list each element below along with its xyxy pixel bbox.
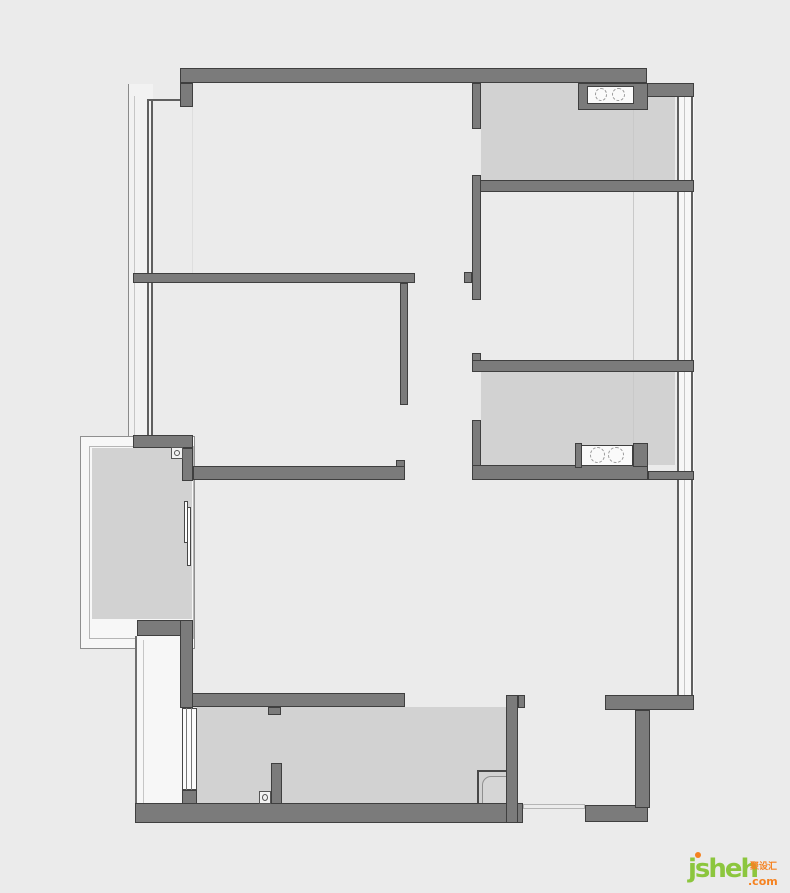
wall-balcony-bottom [137, 620, 183, 636]
kitchen-window-glass [182, 708, 197, 790]
wall-bottom-main [135, 803, 523, 823]
wall-bath-mid-bottom [472, 465, 648, 480]
wall-top-left-stub [180, 83, 193, 107]
shadow-line-right [633, 84, 634, 465]
wall-bedroom-left-bottom-stub [396, 460, 405, 467]
wall-top-right-step [647, 83, 694, 97]
wall-mid-horizontal [133, 273, 415, 283]
kitchen-window-line-b [191, 708, 192, 790]
wall-bath-mid-bottom-ext [648, 471, 694, 480]
room-kitchen [197, 707, 506, 804]
watermark-brand: jsheh [688, 856, 757, 882]
balcony-door-panel-b [187, 507, 191, 566]
vanity-top-basin-left [595, 88, 607, 101]
wall-bath-mid-niche-right [633, 443, 648, 467]
wall-kitchen-right [506, 695, 518, 823]
room-balcony [92, 448, 192, 619]
wall-kitchen-partition [271, 763, 282, 805]
wall-bath-top-left [472, 83, 481, 129]
wall-bedroom-left-bottom [193, 466, 405, 480]
meter-icon-balcony [171, 447, 183, 459]
wall-bedroom-right-left [472, 175, 481, 300]
wall-entry-top [605, 695, 694, 710]
meter-icon-kitchen [259, 791, 271, 804]
watermark-cjk: 聚设汇 [750, 863, 777, 872]
wall-kitchen-right-stub [518, 695, 525, 708]
left-window-band-upper [128, 84, 153, 436]
window-line-lower-faint [143, 640, 144, 804]
wall-entry-right [635, 710, 650, 808]
wall-kitchen-top [192, 693, 405, 707]
wall-bath-top-bottom [472, 180, 694, 192]
window-line-faint-left [134, 96, 135, 436]
shadow-line-living [192, 85, 193, 273]
kitchen-corner-box-inner [482, 776, 509, 805]
meter-icon-kitchen-circle [262, 794, 268, 801]
window-glass-line-left-b [151, 99, 153, 436]
wall-balcony-right-upper [182, 448, 193, 481]
wall-balcony-top [133, 435, 193, 448]
vanity-mid-basin-right [608, 447, 624, 463]
vanity-top-basin-right [612, 88, 625, 101]
watermark: jsheh 聚设汇 .com [686, 854, 790, 892]
vanity-mid-box [581, 445, 633, 466]
wall-top [180, 68, 647, 83]
entry-threshold [523, 804, 585, 809]
window-line-outer-left [128, 84, 129, 436]
window-glass-line-left-a [147, 99, 149, 436]
wall-bath-mid-top [472, 360, 694, 372]
meter-icon-balcony-circle [174, 450, 180, 456]
window-line-lower-a [135, 636, 137, 804]
wall-kitchen-top-stub [268, 707, 281, 715]
watermark-tld: .com [748, 876, 778, 887]
floorplan-canvas: jsheh 聚设汇 .com [0, 0, 790, 893]
kitchen-window-line-a [186, 708, 187, 790]
wall-hall-stub [464, 272, 472, 283]
wall-bedroom-left-right [400, 283, 408, 405]
vanity-mid-basin-left [590, 447, 605, 463]
